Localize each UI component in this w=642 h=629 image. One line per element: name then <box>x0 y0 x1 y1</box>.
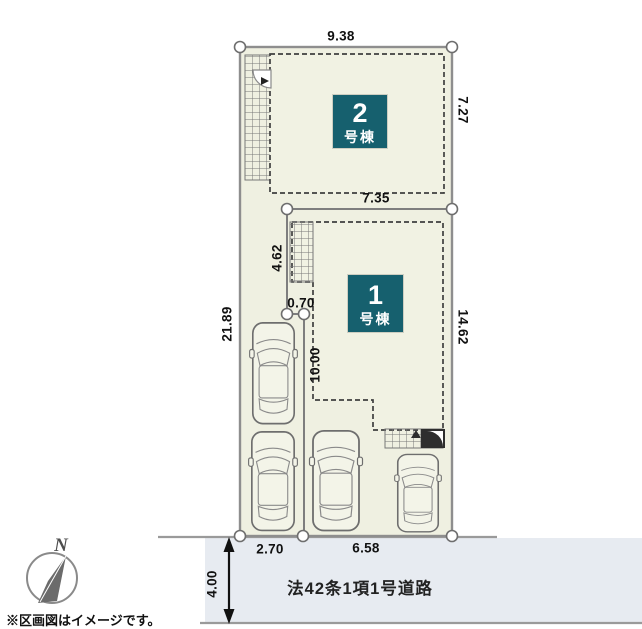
compass-icon <box>27 553 77 603</box>
boundary-marker <box>447 531 458 542</box>
compass-north-label: N <box>54 535 68 557</box>
car-icon <box>250 323 298 424</box>
site-plan: 9.38 7.27 7.35 4.62 0.70 21.89 14.62 10.… <box>0 0 642 629</box>
boundary-marker <box>235 42 246 53</box>
boundary-marker <box>282 204 293 215</box>
building-2-label: 2 号棟 <box>333 95 387 148</box>
building-2-number: 2 <box>352 100 367 127</box>
dim-left-total-depth: 21.89 <box>220 306 235 341</box>
boundary-marker <box>235 531 246 542</box>
car-icon <box>395 454 442 531</box>
boundary-marker <box>447 204 458 215</box>
dim-driveway-depth: 10.00 <box>308 347 323 382</box>
car-icon <box>310 431 363 531</box>
dim-frontage-right: 6.58 <box>352 541 379 556</box>
boundary-marker <box>447 42 458 53</box>
building-2-suffix: 号棟 <box>344 130 376 144</box>
site-plan-drawing <box>0 0 642 629</box>
building-1-number: 1 <box>368 282 383 309</box>
building-1-label: 1 号棟 <box>348 275 403 332</box>
dim-top-width: 9.38 <box>327 29 354 44</box>
stair-hatch-building-1 <box>290 222 313 282</box>
dim-frontage-left: 2.70 <box>256 542 283 557</box>
road-name-label: 法42条1項1号道路 <box>287 575 433 599</box>
disclaimer-note: ※区画図はイメージです。 <box>6 610 160 629</box>
boundary-marker <box>298 531 309 542</box>
building-1-suffix: 号棟 <box>360 312 392 326</box>
dim-lot2-right-depth: 7.27 <box>456 96 471 123</box>
car-icon <box>249 432 298 531</box>
dim-boundary-offset: 0.70 <box>287 296 314 311</box>
dim-lot1-top-width: 7.35 <box>362 191 389 206</box>
dim-lot2-left-depth: 4.62 <box>270 244 285 271</box>
dim-lot1-right-depth: 14.62 <box>456 309 471 344</box>
dim-road-width: 4.00 <box>205 570 220 597</box>
